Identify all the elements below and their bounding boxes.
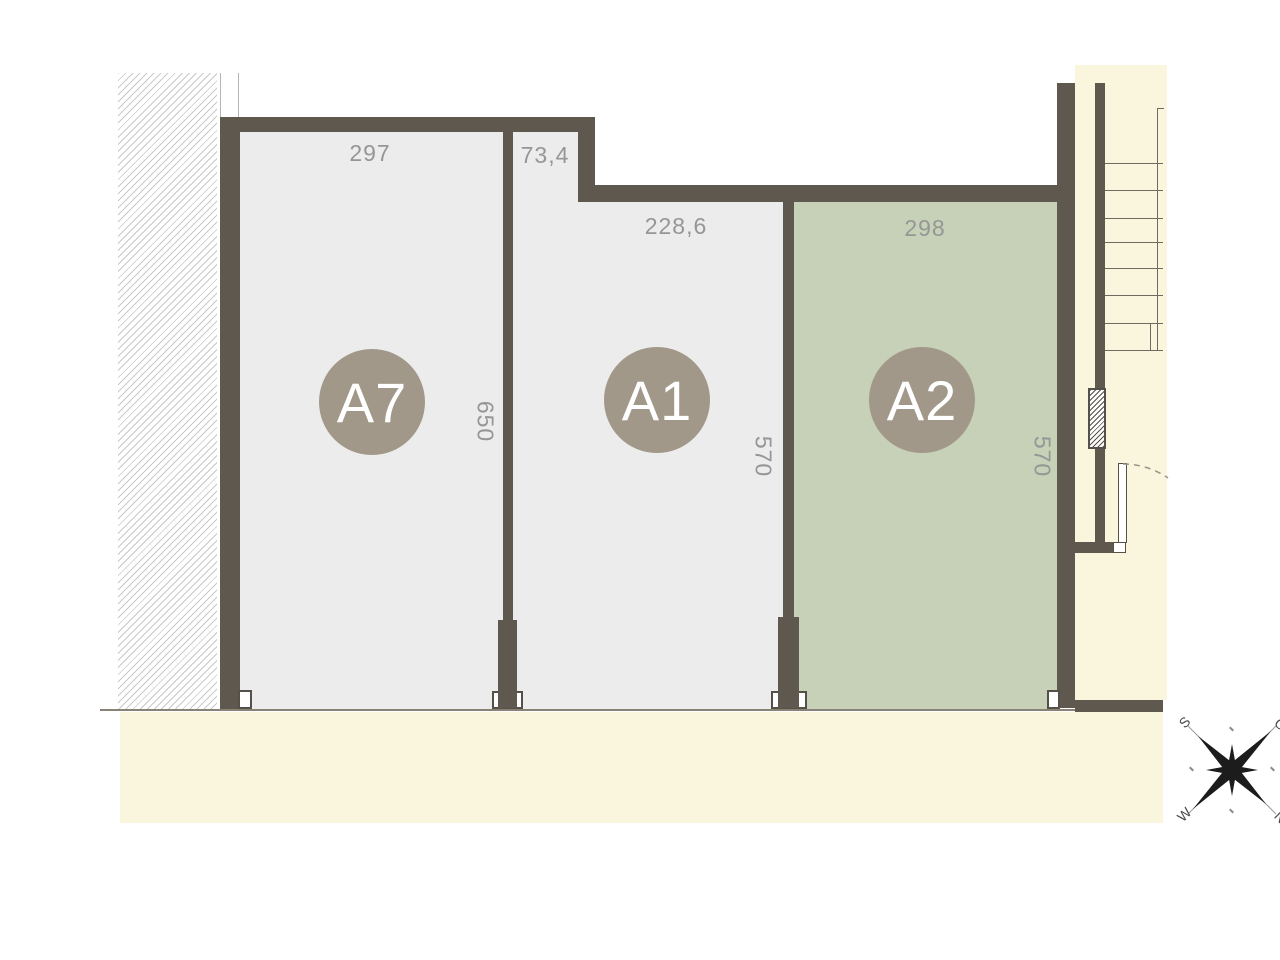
room-a2[interactable] — [794, 202, 1057, 709]
door-swing-arc — [1120, 455, 1180, 495]
wall-stairwell-upper — [1095, 83, 1105, 388]
stair-tread — [1105, 163, 1163, 164]
wall-top-lower — [578, 185, 1075, 202]
room-a1[interactable] — [513, 202, 783, 709]
stair-hall-floor — [1075, 65, 1167, 700]
floorplan-canvas: 297 73,4 228,6 298 650 570 570 A7 A1 A2 … — [0, 0, 1280, 960]
stair-tread — [1105, 268, 1163, 269]
neighbour-wall-hatch — [118, 73, 217, 710]
wall-left-exterior — [220, 117, 240, 709]
wall-divider-a1-a2 — [783, 202, 794, 617]
stair-tread — [1105, 190, 1163, 191]
wall-right-exterior — [1057, 83, 1075, 708]
dim-a7-width: 297 — [310, 140, 430, 167]
extension-line-left — [220, 73, 221, 117]
stair-tread — [1105, 242, 1163, 243]
stairwell-window-hatch — [1088, 388, 1106, 449]
plinth-right-wall — [1047, 690, 1060, 709]
storefront-glass-line — [100, 709, 1075, 711]
unit-badge-a1[interactable]: A1 — [604, 347, 710, 453]
extension-line-right — [238, 73, 239, 117]
unit-label-a7: A7 — [337, 370, 408, 435]
stair-tread — [1105, 218, 1163, 219]
stair-tread — [1105, 350, 1163, 351]
stair-rail-hook — [1157, 108, 1164, 109]
post-divider-a7-a1 — [498, 620, 517, 708]
dim-a7-depth: 650 — [472, 362, 499, 482]
plinth-left-wall — [238, 690, 252, 709]
wall-stairwell-lower — [1095, 449, 1105, 542]
walkway-floor — [120, 712, 1163, 823]
post-divider-a1-a2 — [778, 617, 799, 708]
unit-label-a2: A2 — [887, 368, 958, 433]
wall-top-upper — [220, 117, 595, 132]
stair-rail-end — [1150, 323, 1158, 350]
unit-label-a1: A1 — [622, 368, 693, 433]
stair-rail — [1157, 108, 1158, 350]
compass-rose: S O W N — [1157, 695, 1280, 845]
unit-badge-a7[interactable]: A7 — [319, 349, 425, 455]
wall-threshold-stub — [1075, 542, 1113, 553]
dim-a1-depth: 570 — [750, 397, 777, 517]
stair-tread — [1105, 295, 1163, 296]
compass-letter-east: O — [1271, 715, 1280, 734]
dim-a2-width: 298 — [865, 215, 985, 242]
unit-badge-a2[interactable]: A2 — [869, 347, 975, 453]
dim-a1-entry-width: 73,4 — [505, 142, 585, 169]
wall-divider-a7-a1 — [503, 130, 513, 620]
door-threshold — [1113, 542, 1126, 553]
dim-a1-width: 228,6 — [616, 213, 736, 240]
dim-a2-depth: 570 — [1029, 397, 1056, 517]
wall-bottom-right — [1075, 700, 1163, 712]
compass-letter-west: W — [1174, 804, 1195, 825]
